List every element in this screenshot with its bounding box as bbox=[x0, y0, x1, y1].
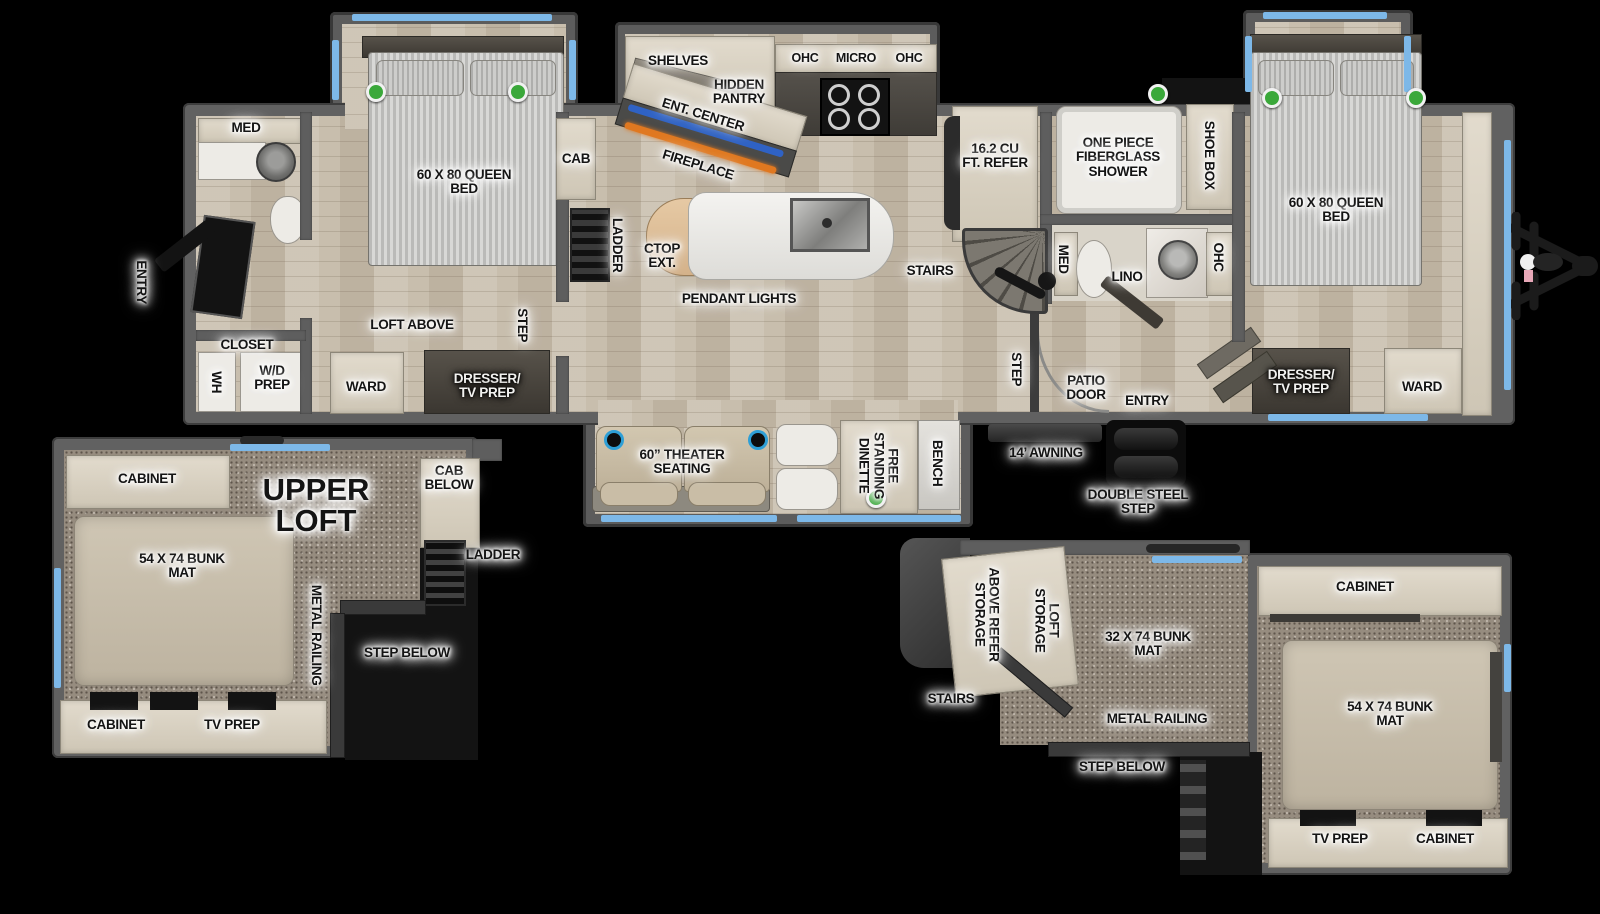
patio-door-label: PATIO DOOR bbox=[1056, 374, 1116, 403]
floorplan-diagram: ENTRY MED CLOSET WH W/D PREP 60 X 80 QUE… bbox=[0, 0, 1600, 914]
kitchen-ladder-label: LADDER bbox=[610, 210, 624, 280]
led-light-dot bbox=[1406, 88, 1426, 108]
roof-handle bbox=[1146, 544, 1240, 553]
led-light-dot bbox=[1148, 84, 1168, 104]
window bbox=[1268, 414, 1428, 421]
loft-left-cabinet-top-label: CABINET bbox=[102, 472, 192, 486]
metal-railing-bar bbox=[330, 613, 345, 758]
tv bbox=[1162, 78, 1250, 104]
tv-slot bbox=[228, 692, 276, 710]
ctop-ext-label: CTOP EXT. bbox=[636, 242, 688, 271]
bath-med-label: MED bbox=[1056, 236, 1070, 282]
hanging-rod bbox=[1270, 614, 1420, 622]
loft-right-railing-label: METAL RAILING bbox=[1092, 712, 1222, 726]
bunk-tv bbox=[1490, 652, 1502, 762]
wh-label: WH bbox=[209, 362, 223, 402]
metal-railing-bar bbox=[340, 600, 426, 615]
tv-slot bbox=[90, 692, 138, 710]
loft-ladder-label: LADDER bbox=[458, 548, 528, 562]
ohc-left-label: OHC bbox=[786, 52, 824, 65]
loft-right-tv-prep-label: TV PREP bbox=[1300, 832, 1380, 846]
led-light-dot bbox=[366, 82, 386, 102]
main-stairs-label: STAIRS bbox=[900, 264, 960, 278]
loft-stairs-edge bbox=[1180, 760, 1206, 860]
pillow bbox=[1340, 60, 1414, 96]
loft-right-step-below-label: STEP BELOW bbox=[1066, 760, 1178, 774]
front-bed-label: 60 X 80 QUEEN BED bbox=[408, 168, 520, 197]
loft-left-step-below-label: STEP BELOW bbox=[352, 646, 462, 660]
cupholder-icon bbox=[604, 430, 624, 450]
entry-steps bbox=[1106, 420, 1186, 486]
skylight-window bbox=[230, 444, 330, 451]
front-ward-label: WARD bbox=[336, 380, 396, 394]
bunk54-right-label: 54 X 74 BUNK MAT bbox=[1338, 700, 1442, 729]
dinette-chair bbox=[776, 424, 838, 466]
bench-label: BENCH bbox=[930, 432, 944, 494]
hidden-pantry-label: HIDDEN PANTRY bbox=[702, 78, 776, 107]
shoe-box-label: SHOE BOX bbox=[1202, 110, 1216, 200]
faucet bbox=[822, 218, 832, 228]
burner bbox=[828, 84, 850, 106]
patio-door-slab bbox=[1030, 312, 1039, 412]
window bbox=[1504, 644, 1511, 692]
loft-left-railing-label: METAL RAILING bbox=[309, 567, 323, 703]
window bbox=[1404, 36, 1411, 92]
wall bbox=[556, 356, 569, 414]
window bbox=[1245, 36, 1252, 92]
wd-prep-label: W/D PREP bbox=[246, 364, 298, 393]
awning-label: 14’ AWNING bbox=[998, 446, 1094, 460]
upper-loft-title: UPPER LOFT bbox=[248, 474, 384, 536]
dinette-label: FREE STANDING DINETTE bbox=[856, 416, 899, 516]
vanity-sink bbox=[1158, 240, 1198, 280]
window bbox=[332, 40, 339, 100]
rear-dresser-label: DRESSER/ TV PREP bbox=[1258, 368, 1344, 397]
pillow bbox=[376, 60, 464, 96]
lino-label: LINO bbox=[1102, 270, 1152, 284]
tv-slot bbox=[150, 692, 198, 710]
burner bbox=[828, 108, 850, 130]
window bbox=[1504, 140, 1511, 390]
trailer-hitch-icon bbox=[1508, 212, 1600, 320]
refer-door bbox=[944, 116, 960, 230]
tv-slot bbox=[1300, 810, 1356, 826]
front-step-label: STEP bbox=[515, 301, 529, 349]
refer-label: 16.2 CU FT. REFER bbox=[962, 142, 1028, 171]
rear-entry-label: ENTRY bbox=[1114, 394, 1180, 408]
front-med-label: MED bbox=[216, 121, 276, 135]
loft-left-cabinet-bottom-label: CABINET bbox=[74, 718, 158, 732]
loft-right-cabinet-top-label: CABINET bbox=[1320, 580, 1410, 594]
window bbox=[1263, 12, 1387, 19]
burner bbox=[858, 108, 880, 130]
shower-label: ONE PIECE FIBERGLASS SHOWER bbox=[1062, 136, 1174, 179]
rear-ward-label: WARD bbox=[1392, 380, 1452, 394]
bunk-mat-54-left bbox=[74, 516, 294, 686]
wall bbox=[300, 112, 312, 240]
pendant-lights-label: PENDANT LIGHTS bbox=[672, 292, 806, 306]
theater-footrest bbox=[600, 482, 678, 506]
refrigerator bbox=[952, 106, 1038, 242]
loft-left-tv-prep-label: TV PREP bbox=[192, 718, 272, 732]
handrail-knob bbox=[1038, 272, 1056, 290]
cab-label: CAB bbox=[554, 152, 598, 166]
hall-step-label: STEP bbox=[1009, 345, 1023, 393]
window bbox=[54, 568, 61, 688]
ohc-right-label: OHC bbox=[890, 52, 928, 65]
window bbox=[797, 515, 961, 522]
window bbox=[352, 14, 552, 21]
loft-left-cutout bbox=[345, 614, 423, 760]
closet-label: CLOSET bbox=[206, 338, 288, 352]
theater-footrest bbox=[688, 482, 766, 506]
micro-label: MICRO bbox=[830, 52, 882, 65]
loft-above-label: LOFT ABOVE bbox=[360, 318, 464, 332]
burner bbox=[858, 84, 880, 106]
loft-storage-label: LOFT STORAGE bbox=[1032, 580, 1061, 660]
dinette-chair bbox=[776, 468, 838, 510]
tv-slot bbox=[1426, 810, 1482, 826]
awning-roll bbox=[988, 424, 1102, 442]
bath-ohc-label: OHC bbox=[1211, 235, 1225, 279]
loft-ladder bbox=[570, 208, 610, 282]
metal-railing-bar bbox=[1048, 742, 1250, 757]
front-entry-label: ENTRY bbox=[134, 244, 148, 320]
bunk54-left-label: 54 X 74 BUNK MAT bbox=[132, 552, 232, 581]
loft-right-stairs-label: STAIRS bbox=[918, 692, 984, 706]
rear-cap bbox=[1462, 112, 1492, 416]
shelves-label: SHELVES bbox=[638, 54, 718, 68]
window bbox=[1152, 556, 1242, 563]
bath-sink bbox=[256, 142, 296, 182]
wall bbox=[1232, 112, 1245, 342]
led-light-dot bbox=[508, 82, 528, 102]
window bbox=[569, 40, 576, 100]
bunk32-label: 32 X 74 BUNK MAT bbox=[1098, 630, 1198, 659]
wall bbox=[1040, 214, 1244, 225]
front-dresser-label: DRESSER/ TV PREP bbox=[444, 372, 530, 401]
double-step-label: DOUBLE STEEL STEP bbox=[1082, 488, 1194, 517]
rear-bed-label: 60 X 80 QUEEN BED bbox=[1280, 196, 1392, 225]
window bbox=[601, 515, 777, 522]
cupholder-icon bbox=[748, 430, 768, 450]
led-light-dot bbox=[1262, 88, 1282, 108]
theater-label: 60” THEATER SEATING bbox=[618, 448, 746, 477]
above-refer-storage-label: ABOVE REFER STORAGE bbox=[972, 566, 1001, 662]
cab-below-label: CAB BELOW bbox=[418, 464, 480, 493]
loft-right-cabinet-bottom-label: CABINET bbox=[1400, 832, 1490, 846]
